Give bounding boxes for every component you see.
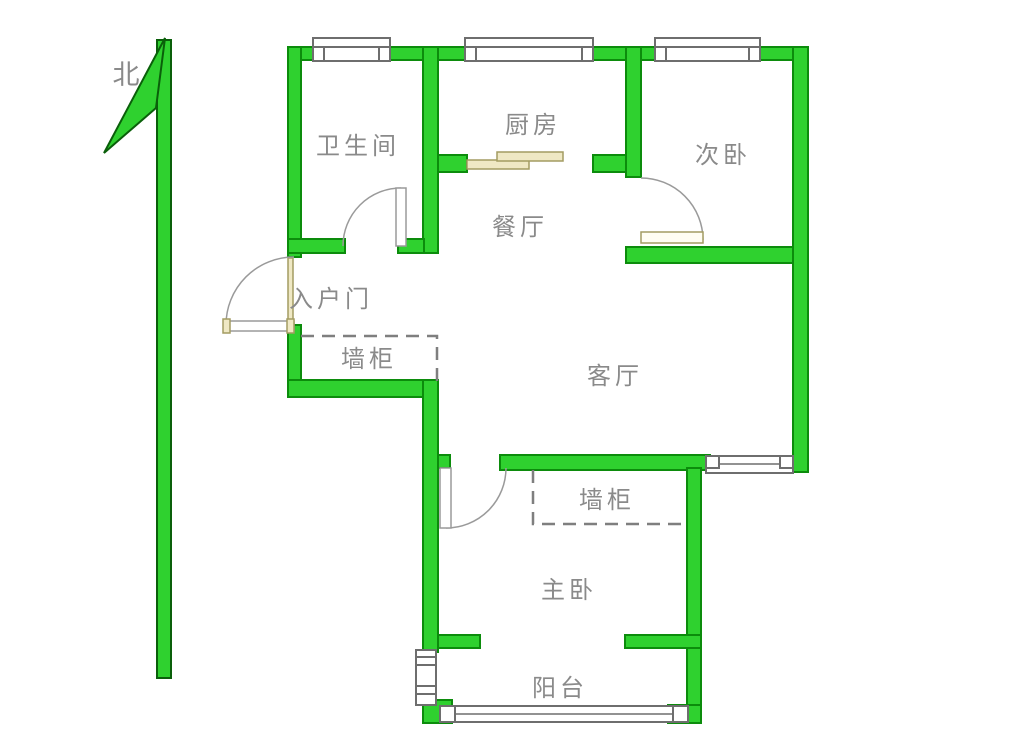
- wall-cabinet-bottom: [288, 380, 438, 397]
- window-balcony-side-icon: [416, 650, 436, 705]
- door-bathroom: [343, 188, 406, 246]
- room-label-kitchen: 厨房: [505, 111, 561, 139]
- room-label-master: 主卧: [541, 576, 597, 604]
- room-label-bathroom: 卫生间: [316, 132, 400, 160]
- room-label-bedroom2: 次卧: [695, 141, 751, 169]
- wall-balcony-divider-left: [438, 635, 480, 648]
- wall-bathroom-kitchen: [423, 47, 438, 253]
- wall-kitchen-stub-left: [438, 155, 467, 172]
- door-master: [440, 468, 506, 528]
- label-wall-cabinet-bottom: 墙柜: [579, 486, 635, 514]
- room-label-balcony: 阳台: [532, 674, 588, 702]
- wall-left-upper: [288, 47, 301, 257]
- room-label-living: 客厅: [587, 362, 643, 390]
- door-entry: [223, 257, 294, 333]
- wall-bathroom-bottom: [288, 239, 345, 253]
- label-wall-cabinet-top: 墙柜: [341, 345, 397, 373]
- label-entry-door: 入户门: [289, 285, 373, 313]
- wall-balcony-divider-right: [625, 635, 701, 648]
- wall-kitchen-bedroom2: [626, 47, 641, 177]
- north-label: 北: [113, 60, 140, 91]
- wall-master-right: [687, 468, 701, 723]
- window-bedroom2-icon: [655, 38, 760, 61]
- wall-right: [793, 47, 808, 472]
- door-bedroom2: [641, 178, 703, 243]
- wall-bedroom2-bottom: [626, 247, 808, 263]
- wall-left-lower: [423, 380, 438, 652]
- floor-plan-svg: 北: [0, 0, 1025, 739]
- window-kitchen-icon: [465, 38, 593, 61]
- wall-living-bottom: [500, 455, 710, 470]
- window-living-icon: [706, 456, 793, 473]
- window-balcony-icon: [440, 706, 688, 722]
- north-arrow-icon: [104, 38, 171, 678]
- room-label-dining: 餐厅: [492, 213, 548, 241]
- window-bathroom-icon: [313, 38, 390, 61]
- wall-master-door-stub: [438, 455, 450, 468]
- sliding-door-kitchen: [467, 152, 563, 169]
- floor-plan-canvas: 北: [0, 0, 1025, 739]
